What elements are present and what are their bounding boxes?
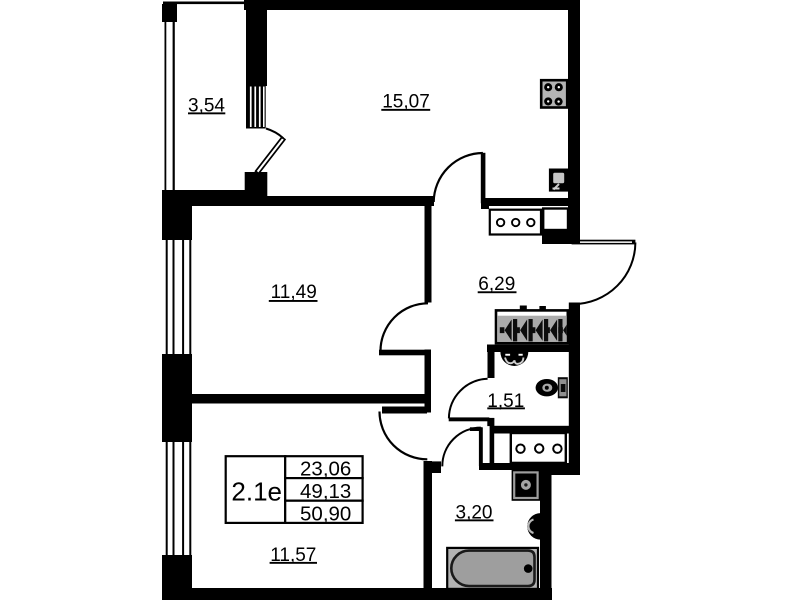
svg-text:23,06: 23,06 — [300, 458, 351, 481]
svg-text:11,49: 11,49 — [271, 282, 317, 303]
svg-text:49,13: 49,13 — [300, 480, 351, 503]
svg-text:50,90: 50,90 — [300, 503, 351, 526]
svg-text:2.1e: 2.1e — [231, 477, 282, 507]
